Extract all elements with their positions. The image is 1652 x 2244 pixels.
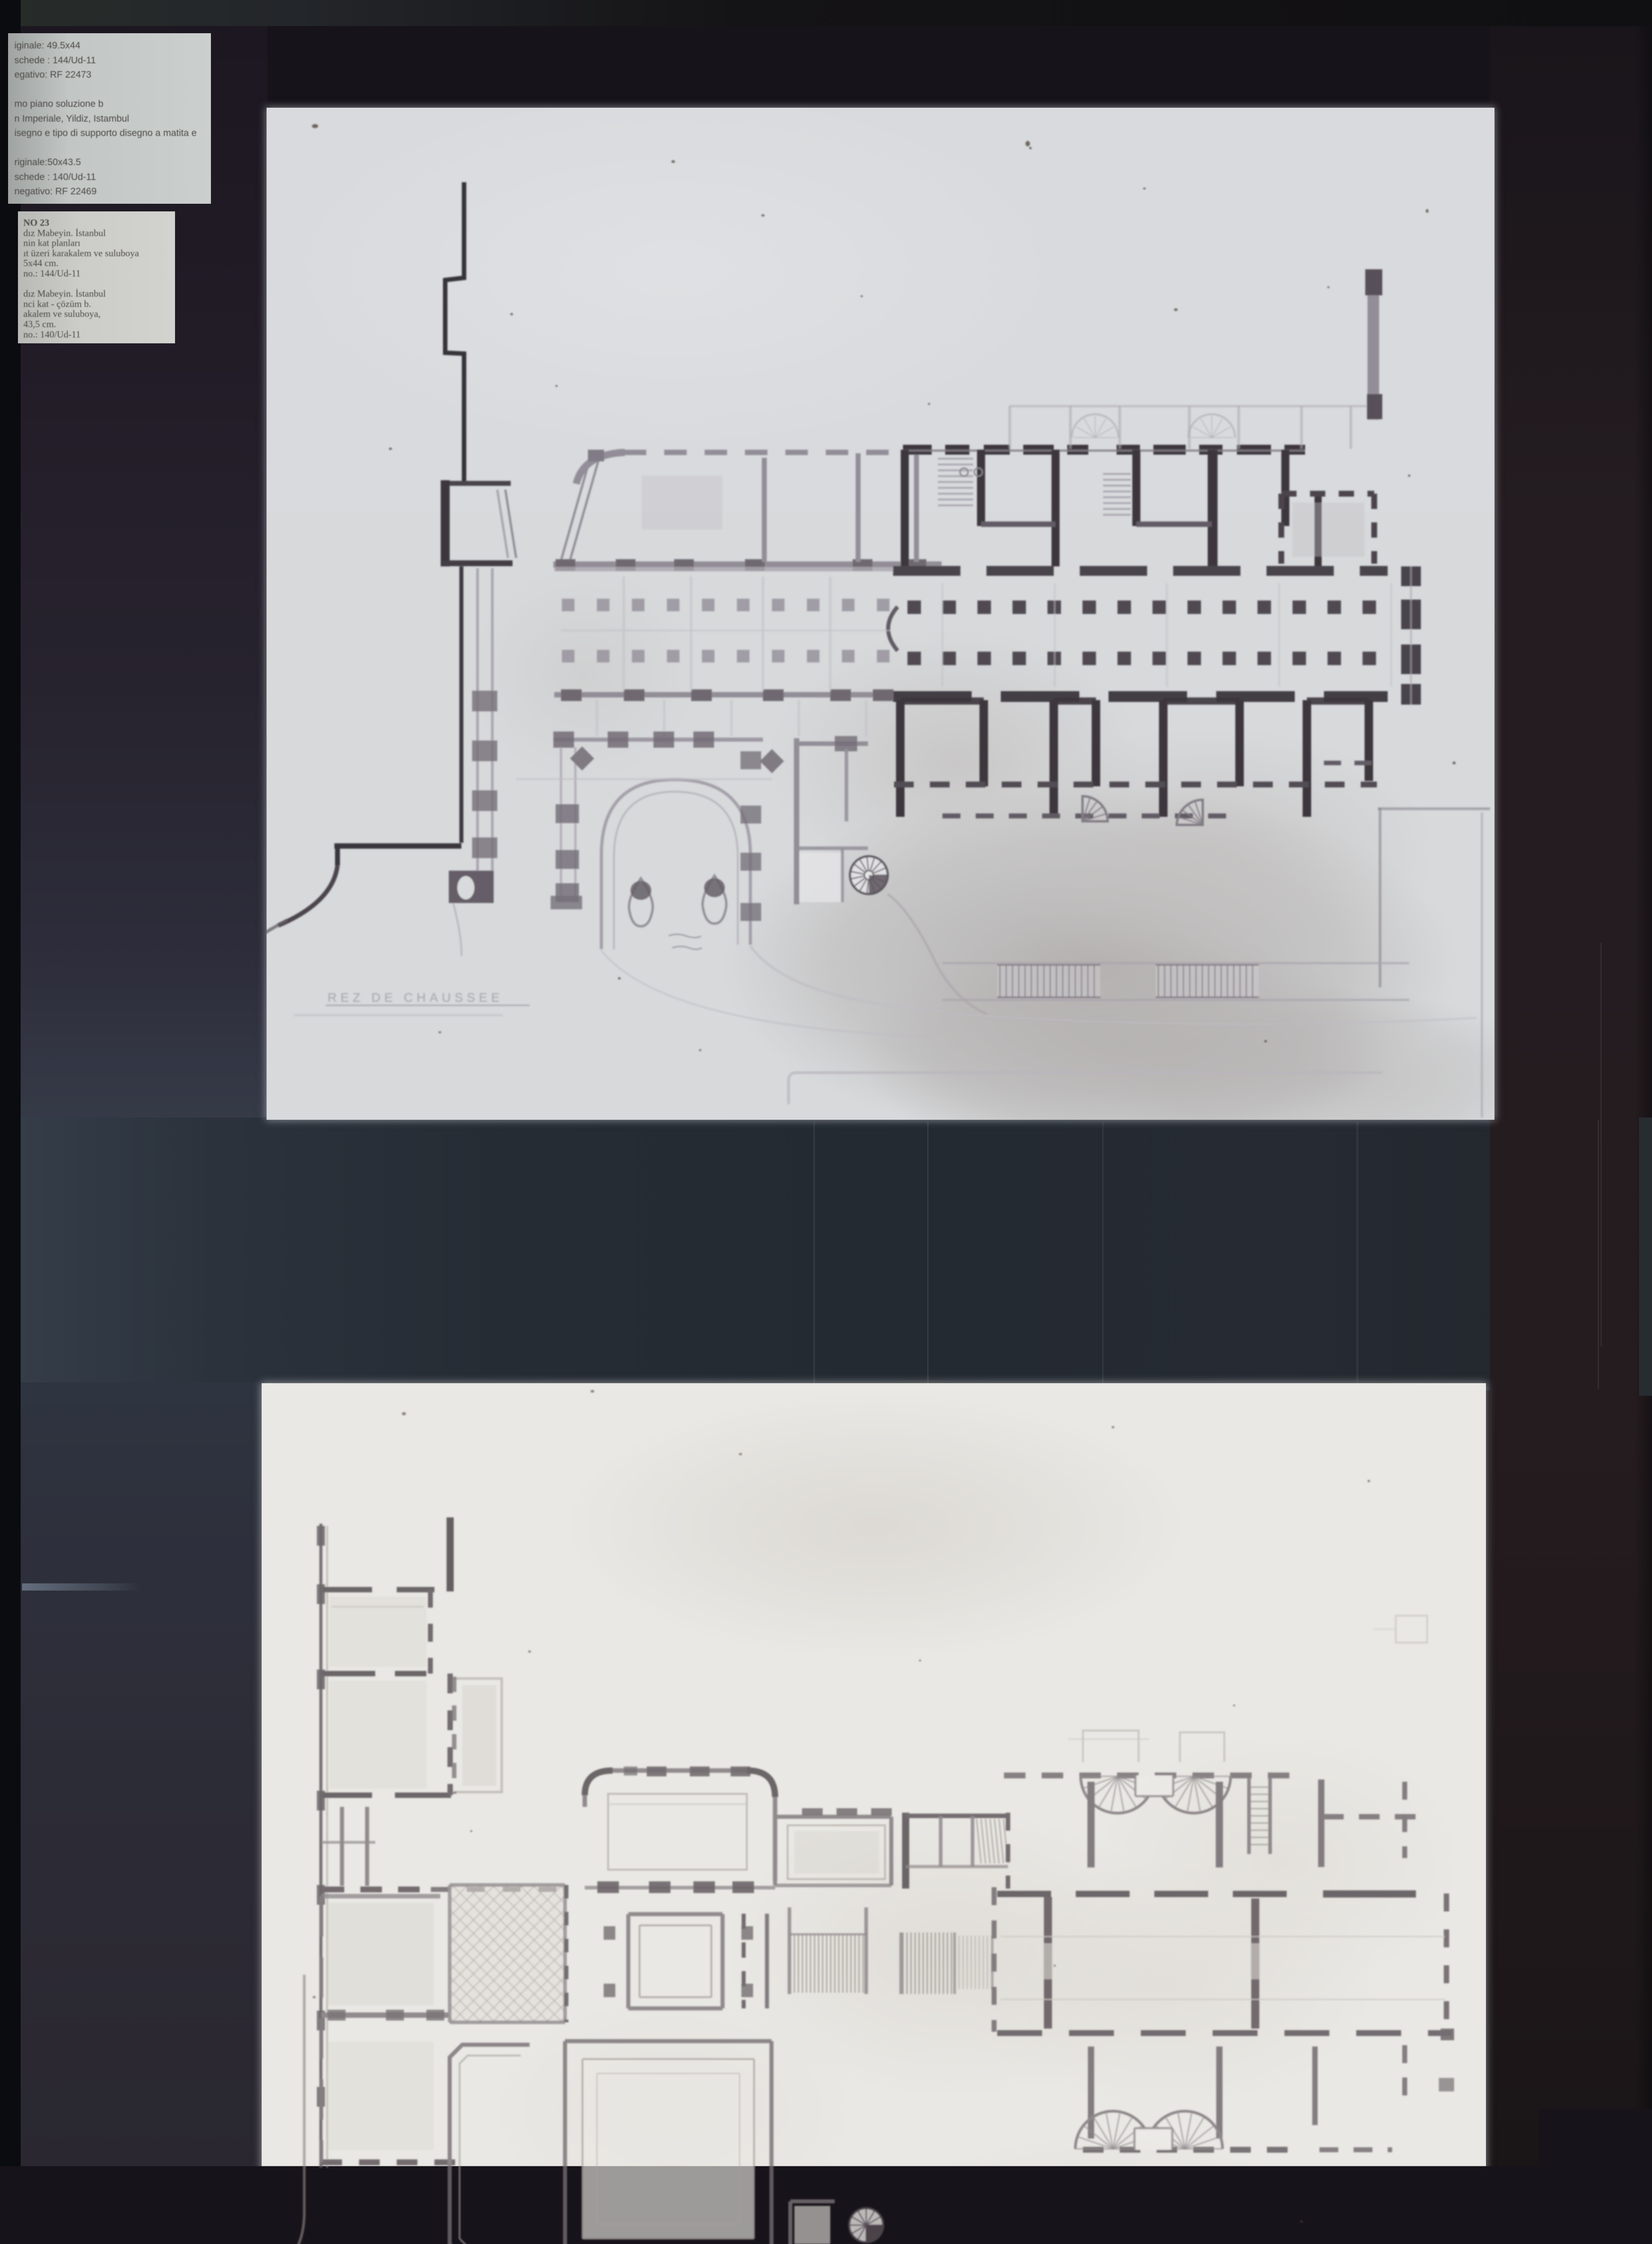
svg-text:REZ DE CHAUSSEE: REZ DE CHAUSSEE — [328, 991, 503, 1004]
